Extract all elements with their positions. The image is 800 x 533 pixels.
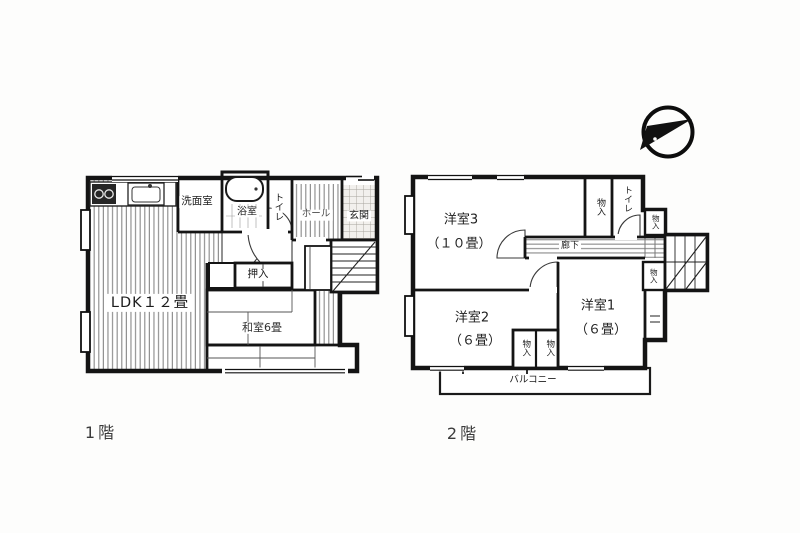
floorplan-canvas: 洗面室 浴室 トイレ ホール 玄関 押入 和室6畳 LDK１２畳 1階 洋室3 … xyxy=(0,0,800,533)
room-label-entrance: 玄関 xyxy=(347,210,371,221)
small-closet-box xyxy=(209,263,235,288)
room-label-storage-bottom-right: 物入 xyxy=(544,338,554,359)
room-label-western3: 洋室3 xyxy=(442,214,480,229)
room-label-oshiire: 押入 xyxy=(246,269,271,281)
room-label-western1: 洋室1 xyxy=(579,300,617,315)
room-label-western3-size: （１０畳） xyxy=(424,238,493,253)
room-label-corridor: 廊下 xyxy=(559,241,581,251)
room-label-western2: 洋室2 xyxy=(453,312,491,327)
floor2-title: 2階 xyxy=(447,420,479,444)
floor2-plan xyxy=(405,173,707,394)
room-label-storage-top: 物入 xyxy=(595,196,605,218)
room-label-western1-size: （６畳） xyxy=(573,324,629,339)
room-label-washitsu: 和室6畳 xyxy=(240,322,284,334)
room-label-toilet-1f: トイレ xyxy=(272,191,283,224)
stove-icon xyxy=(92,184,116,204)
compass-icon xyxy=(640,108,693,157)
room-label-western2-size: （６畳） xyxy=(447,335,503,350)
kitchen-counter-icon xyxy=(90,182,176,206)
room-label-bathroom: 浴室 xyxy=(235,206,259,217)
room-label-storage-mid-right: 物入 xyxy=(649,267,657,286)
floor1-plan xyxy=(81,172,377,375)
room-label-toilet-2f: トイレ xyxy=(622,184,632,215)
floorplan-drawing xyxy=(0,0,800,533)
room-label-storage-top-right: 物入 xyxy=(651,213,659,232)
stairs-1f-icon xyxy=(305,240,377,292)
room-label-washroom: 洗面室 xyxy=(179,196,215,208)
floor1-title: 1階 xyxy=(85,419,117,443)
room-label-hall: ホール xyxy=(300,210,333,221)
room-label-storage-bottom-left: 物入 xyxy=(520,338,530,359)
room-label-balcony: バルコニー xyxy=(507,376,558,387)
room-label-ldk: LDK１２畳 xyxy=(107,294,193,312)
stairs-2f-icon xyxy=(665,235,707,290)
